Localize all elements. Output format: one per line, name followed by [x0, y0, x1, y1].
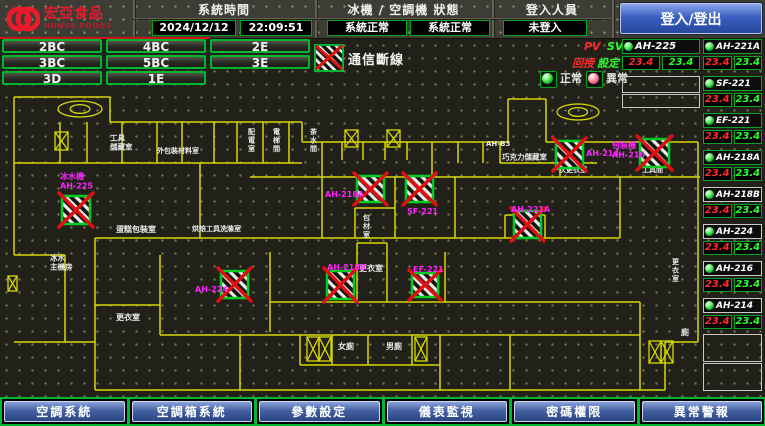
legend-normal-label: 正常 — [560, 72, 582, 85]
room-label: 蛋糕包裝室 — [116, 224, 156, 234]
feedback-header: 回授 — [572, 55, 594, 71]
status-led-icon — [705, 227, 714, 236]
nav-button-空調箱系統[interactable]: 空調箱系統 — [132, 401, 253, 422]
status-led-icon — [705, 153, 714, 162]
device-marker-包裝機-AH-216[interactable]: 包裝機AH-216 — [611, 136, 672, 170]
bottom-nav: 空調系統空調箱系統參數設定儀表監視密碼權限異常警報 — [0, 397, 765, 426]
pv-value: 23.4 — [703, 93, 732, 107]
empty-slot — [622, 76, 700, 93]
device-marker-EF-221[interactable]: EF-221 — [409, 265, 444, 300]
status-led-icon — [705, 264, 714, 273]
equipment-AH-221A[interactable]: AH-221A23.423.4 — [703, 39, 762, 70]
status-led-icon — [705, 116, 714, 125]
device-label: AH-221A — [511, 205, 551, 214]
company-logo: 宏亞食品 HUNYA FOODS — [0, 0, 133, 38]
equipment-SF-221[interactable]: SF-22123.423.4 — [703, 76, 762, 107]
nav-button-異常警報[interactable]: 異常警報 — [642, 401, 763, 422]
nav-button-密碼權限[interactable]: 密碼權限 — [514, 401, 635, 422]
room-label: 更衣室 — [672, 258, 680, 283]
room-label: 男廁 — [386, 341, 402, 351]
machine-status-label: 冰機 / 空調機 狀態 — [315, 2, 492, 18]
pv-value: 23.4 — [703, 130, 732, 144]
equipment-AH-214[interactable]: AH-21423.423.4 — [703, 298, 762, 329]
sv-value: 23.4 — [734, 167, 763, 181]
ac-status: 系統正常 — [410, 20, 490, 36]
room-label: 包材室 — [362, 213, 370, 239]
floor-button-2E[interactable]: 2E — [210, 39, 310, 53]
device-marker-AH-224[interactable]: AH-224 — [195, 268, 251, 301]
equipment-name: AH-224 — [716, 227, 753, 237]
pv-value: 23.4 — [622, 56, 660, 70]
status-led-icon — [705, 301, 714, 310]
chiller-status: 系統正常 — [327, 20, 407, 36]
floor-button-2BC[interactable]: 2BC — [2, 39, 102, 53]
sv-value: 23.4 — [734, 315, 763, 329]
nav-button-空調系統[interactable]: 空調系統 — [4, 401, 125, 422]
floor-button-3BC[interactable]: 3BC — [2, 55, 102, 69]
equipment-name: AH-214 — [716, 301, 753, 311]
room-label: 巧克力儲藏室 — [502, 152, 547, 162]
device-marker-AH-218A[interactable]: AH-218A — [325, 173, 387, 205]
pv-value: 23.4 — [703, 204, 732, 218]
floor-button-5BC[interactable]: 5BC — [106, 55, 206, 69]
room-label: 電梯間 — [273, 127, 280, 153]
divider — [133, 18, 612, 19]
status-led-icon — [705, 190, 714, 199]
sv-value: 23.4 — [734, 241, 763, 255]
equipment-AH-218A[interactable]: AH-218A23.423.4 — [703, 150, 762, 181]
floor-selector: 2BC4BC2E3BC5BC3E3D1E — [2, 39, 310, 87]
floor-button-4BC[interactable]: 4BC — [106, 39, 206, 53]
room-label: 外包裝材料室 — [157, 146, 199, 155]
disconnect-legend-label: 通信斷線 — [348, 49, 404, 68]
floor-button-3D[interactable]: 3D — [2, 71, 102, 85]
room-label: 更衣室 — [116, 312, 140, 322]
nav-cell: 異常警報 — [638, 397, 765, 426]
device-label: EF-221 — [413, 265, 444, 274]
sv-value: 23.4 — [734, 56, 763, 70]
setpoint-header: 設定 — [597, 55, 619, 71]
red-divider — [0, 37, 210, 39]
device-label: AH-224 — [195, 285, 228, 294]
device-label: SF-221 — [407, 207, 438, 216]
legend-normal: 正常 — [540, 70, 582, 88]
pv-value: 23.4 — [703, 315, 732, 329]
nav-cell: 空調系統 — [0, 397, 128, 426]
green-led-icon — [540, 71, 557, 88]
device-marker-AH-218B[interactable]: AH-218B — [324, 263, 366, 302]
equipment-name: AH-218B — [716, 190, 760, 200]
nav-button-儀表監視[interactable]: 儀表監視 — [387, 401, 508, 422]
nav-cell: 密碼權限 — [510, 397, 638, 426]
empty-slot — [703, 363, 762, 391]
room-label: 茶水間 — [309, 127, 318, 153]
status-led-icon — [624, 42, 633, 51]
pv-header: PV — [584, 40, 601, 53]
nav-cell: 參數設定 — [255, 397, 383, 426]
date-display: 2024/12/12 — [152, 20, 236, 36]
room-label: 烘焙工具洗滌室 — [192, 224, 241, 233]
equipment-AH-225[interactable]: AH-22523.423.4 — [622, 39, 700, 70]
login-logout-button[interactable]: 登入/登出 — [620, 3, 762, 34]
sv-header: SV — [607, 40, 623, 53]
empty-slot — [622, 94, 700, 108]
room-label: AH-B3 — [486, 140, 511, 148]
sv-value: 23.4 — [734, 204, 763, 218]
equipment-EF-221[interactable]: EF-22123.423.4 — [703, 113, 762, 144]
device-marker-SF-221[interactable]: SF-221 — [403, 173, 438, 216]
room-label: 配電室 — [248, 127, 255, 153]
logo-subtitle: HUNYA FOODS — [44, 22, 112, 31]
login-status: 未登入 — [503, 20, 587, 36]
room-label: 冰水主機房 — [50, 253, 73, 272]
disconnect-icon — [314, 44, 344, 72]
equipment-AH-218B[interactable]: AH-218B23.423.4 — [703, 187, 762, 218]
top-bar: 宏亞食品 HUNYA FOODS 系統時間 2024/12/12 22:09:5… — [0, 0, 765, 39]
logo-title: 宏亞食品 — [44, 7, 112, 22]
equipment-AH-216[interactable]: AH-21623.423.4 — [703, 261, 762, 292]
sv-value: 23.4 — [734, 278, 763, 292]
room-label: 廁 — [681, 327, 689, 337]
sv-value: 23.4 — [734, 93, 763, 107]
device-label: AH-218B — [327, 263, 366, 272]
equipment-name: AH-216 — [716, 264, 753, 274]
pv-value: 23.4 — [703, 167, 732, 181]
room-label: 工具儲藏室 — [110, 134, 133, 152]
status-led-icon — [705, 42, 714, 51]
floor-button-1E[interactable]: 1E — [106, 71, 206, 85]
device-label: AH-218A — [325, 190, 365, 199]
equipment-name: EF-221 — [716, 116, 750, 126]
nav-button-參數設定[interactable]: 參數設定 — [259, 401, 380, 422]
sv-value: 23.4 — [662, 56, 700, 70]
status-led-icon — [705, 79, 714, 88]
floor-button-3E[interactable]: 3E — [210, 55, 310, 69]
pv-value: 23.4 — [703, 56, 732, 70]
device-marker-冰水機-AH-225[interactable]: 冰水機AH-225 — [59, 171, 93, 227]
sv-value: 23.4 — [734, 130, 763, 144]
equipment-name: AH-225 — [635, 41, 676, 52]
nav-cell: 空調箱系統 — [128, 397, 256, 426]
equipment-name: AH-221A — [716, 42, 760, 52]
equipment-name: SF-221 — [716, 79, 751, 89]
nav-cell: 儀表監視 — [383, 397, 511, 426]
divider — [612, 0, 614, 38]
empty-slot — [703, 334, 762, 362]
login-person-label: 登入人員 — [492, 2, 612, 18]
pv-value: 23.4 — [703, 278, 732, 292]
device-label: 冰水機AH-225 — [60, 171, 93, 191]
room-label: 女廁 — [338, 341, 354, 351]
floorplan-room-labels: 工具儲藏室外包裝材料室配電室電梯間茶水間AH-B3巧克力儲藏室一次更衣室工具間包… — [50, 127, 689, 351]
equipment-name: AH-218A — [716, 153, 760, 163]
time-display: 22:09:51 — [240, 20, 312, 36]
pv-value: 23.4 — [703, 241, 732, 255]
logo-icon — [6, 4, 40, 34]
equipment-AH-224[interactable]: AH-22423.423.4 — [703, 224, 762, 255]
system-time-label: 系統時間 — [133, 2, 315, 18]
red-led-icon — [586, 71, 603, 88]
